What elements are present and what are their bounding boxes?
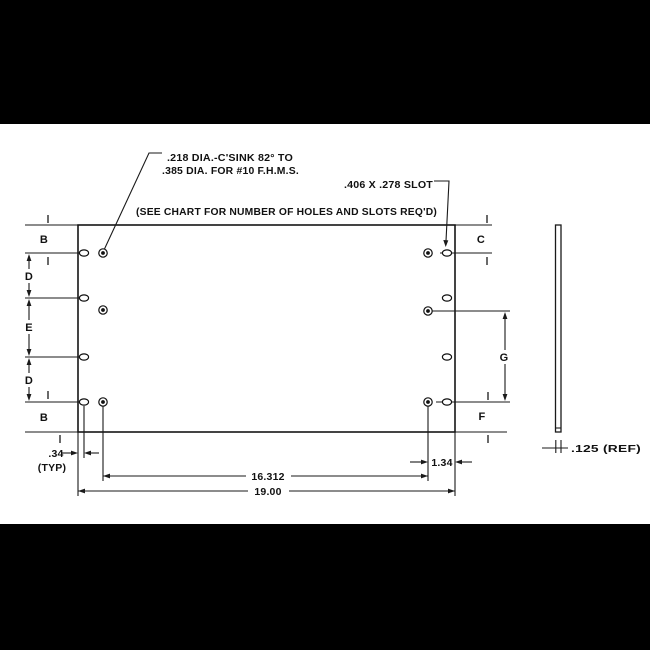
- engineering-drawing: .218 DIA.-C'SINK 82° TO .385 DIA. FOR #1…: [0, 0, 650, 650]
- vertical-dimensions: [27, 254, 508, 401]
- dim-edge-offset-qualifier: (TYP): [38, 462, 66, 474]
- countersink-note-line-1: .218 DIA.-C'SINK 82° TO: [167, 152, 293, 164]
- thickness-ref-note: .125 (REF): [571, 443, 641, 455]
- countersink-holes: [99, 249, 432, 406]
- label-c: C: [477, 234, 485, 246]
- countersink-hole: [99, 249, 107, 257]
- front-view: [25, 225, 507, 432]
- mounting-slot: [79, 399, 88, 405]
- label-b-top: B: [40, 234, 48, 246]
- chart-note: (SEE CHART FOR NUMBER OF HOLES AND SLOTS…: [136, 206, 437, 218]
- dim-hole-span: 16.312: [251, 471, 284, 483]
- countersink-note-line-2: .385 DIA. FOR #10 F.H.M.S.: [162, 165, 299, 177]
- mounting-slot: [79, 250, 88, 256]
- side-view: [542, 225, 568, 453]
- mounting-slot: [442, 250, 451, 256]
- dim-slot-to-edge: 1.34: [431, 457, 452, 469]
- countersink-hole: [424, 249, 432, 257]
- dim-edge-offset: .34: [48, 448, 63, 460]
- mounting-slot: [442, 354, 451, 360]
- mounting-slot: [442, 399, 451, 405]
- mounting-slot: [79, 354, 88, 360]
- countersink-hole: [424, 307, 432, 315]
- dim-overall-width: 19.00: [254, 486, 281, 498]
- panel-side-view: [556, 225, 562, 432]
- label-b-bottom: B: [40, 412, 48, 424]
- label-d-lower: D: [25, 375, 33, 387]
- countersink-hole: [99, 306, 107, 314]
- mounting-slot: [79, 295, 88, 301]
- countersink-hole: [424, 398, 432, 406]
- slot-note: .406 X .278 SLOT: [344, 179, 433, 191]
- countersink-hole: [99, 398, 107, 406]
- drawing-sheet: .218 DIA.-C'SINK 82° TO .385 DIA. FOR #1…: [0, 0, 650, 650]
- countersink-leader: [104, 153, 162, 250]
- panel-front-view: [78, 225, 455, 432]
- label-f: F: [479, 411, 486, 423]
- label-d-upper: D: [25, 271, 33, 283]
- dimension-ticks: [48, 215, 488, 443]
- mounting-slots: [79, 250, 451, 405]
- label-e: E: [25, 322, 33, 334]
- label-g: G: [500, 352, 509, 364]
- mounting-slot: [442, 295, 451, 301]
